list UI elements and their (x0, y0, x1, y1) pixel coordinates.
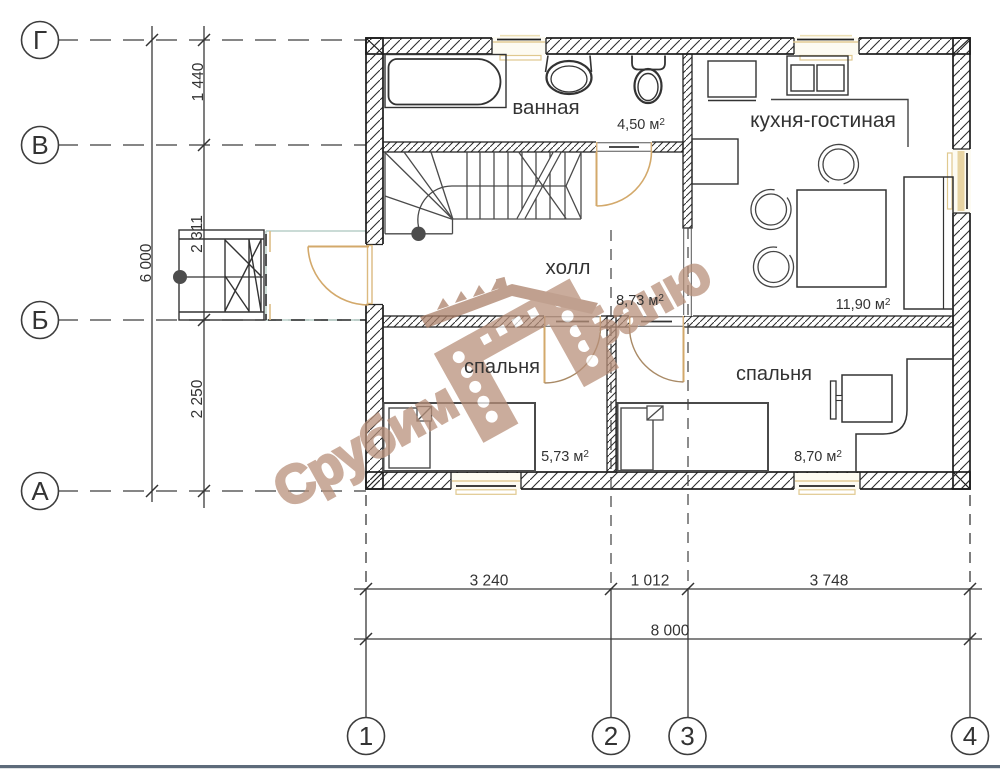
svg-text:1: 1 (359, 721, 373, 751)
svg-text:2 250: 2 250 (189, 379, 206, 418)
svg-text:Б: Б (31, 305, 48, 335)
svg-text:1 440: 1 440 (190, 62, 207, 101)
svg-text:8,73 м2: 8,73 м2 (616, 293, 664, 309)
svg-text:8,70 м2: 8,70 м2 (794, 449, 842, 465)
svg-text:2 311: 2 311 (189, 215, 206, 253)
svg-text:1 012: 1 012 (631, 573, 670, 590)
svg-text:2: 2 (604, 721, 618, 751)
svg-text:спальня: спальня (736, 363, 812, 385)
svg-text:холл: холл (546, 256, 591, 279)
svg-text:ванная: ванная (512, 96, 579, 119)
svg-text:А: А (31, 476, 49, 506)
svg-text:3: 3 (680, 721, 694, 751)
svg-text:кухня-гостиная: кухня-гостиная (750, 109, 896, 132)
svg-text:спальня: спальня (464, 356, 540, 378)
svg-text:11,90 м2: 11,90 м2 (836, 297, 891, 313)
svg-text:6 000: 6 000 (138, 243, 155, 282)
svg-text:В: В (31, 130, 48, 160)
svg-text:3 240: 3 240 (470, 573, 509, 590)
svg-text:4,50 м2: 4,50 м2 (617, 117, 665, 133)
svg-text:3 748: 3 748 (810, 573, 849, 590)
svg-text:Г: Г (33, 25, 47, 55)
svg-text:8 000: 8 000 (651, 623, 690, 640)
svg-text:4: 4 (963, 721, 977, 751)
svg-text:5,73 м2: 5,73 м2 (541, 449, 589, 465)
